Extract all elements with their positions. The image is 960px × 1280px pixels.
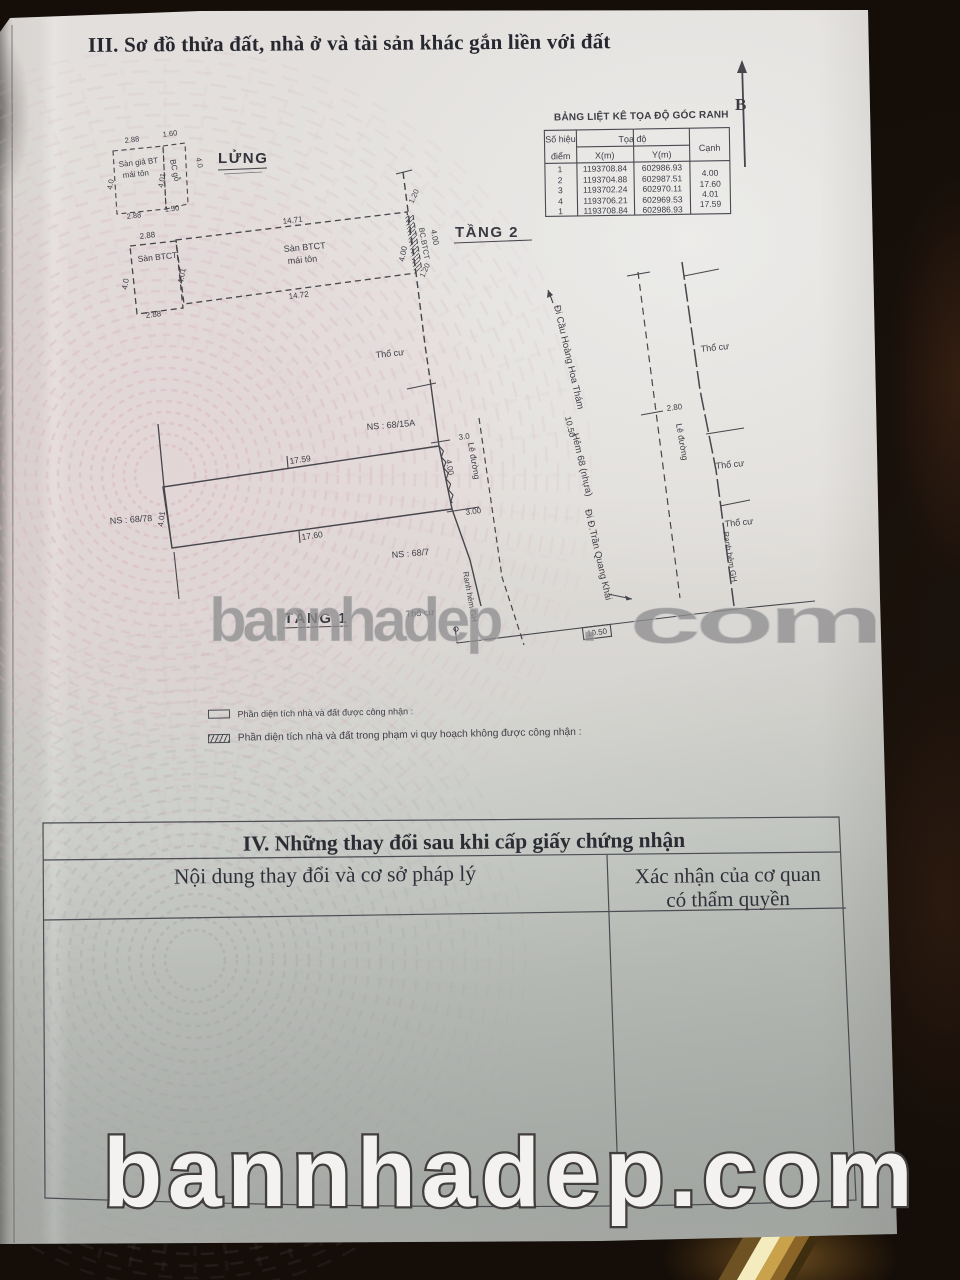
- svg-text:bannhadep.com: bannhadep.com: [103, 1118, 918, 1227]
